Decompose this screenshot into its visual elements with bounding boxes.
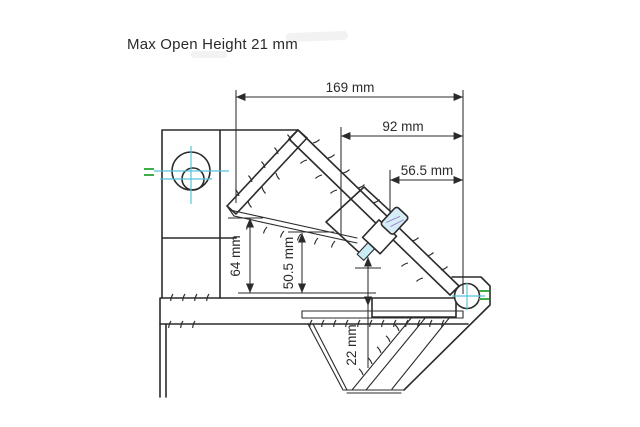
hole-centerlines (144, 146, 229, 204)
dimension-bolt-position: 56.5 mm (390, 163, 463, 180)
left-wall (160, 324, 166, 397)
extension-lines (228, 90, 463, 294)
dimension-overall-length: 169 mm (236, 80, 463, 97)
v-channel (308, 317, 450, 393)
dim-label-50-5: 50.5 mm (281, 237, 296, 290)
dimension-base-offset: 22 mm (344, 257, 368, 368)
cad-drawing: Max Open Height 21 mm (0, 0, 640, 427)
clamp-arm-section (289, 130, 459, 295)
arm-end-section (372, 298, 456, 317)
dimension-jaw-height-inner: 50.5 mm (281, 233, 302, 293)
dim-label-169: 169 mm (326, 80, 375, 95)
drawing-title: Max Open Height 21 mm (127, 36, 298, 53)
dim-label-92: 92 mm (382, 119, 423, 134)
dim-label-56-5: 56.5 mm (401, 163, 454, 178)
clamp-bolt (352, 204, 412, 266)
dim-label-22: 22 mm (344, 324, 359, 365)
drawing-page: Max Open Height 21 mm (0, 0, 640, 427)
dim-label-64: 64 mm (228, 235, 243, 276)
hinge-bracket (404, 277, 490, 390)
upper-jaw-section (227, 130, 307, 214)
base-plate (160, 298, 468, 397)
dimension-arm-length: 92 mm (341, 119, 463, 136)
